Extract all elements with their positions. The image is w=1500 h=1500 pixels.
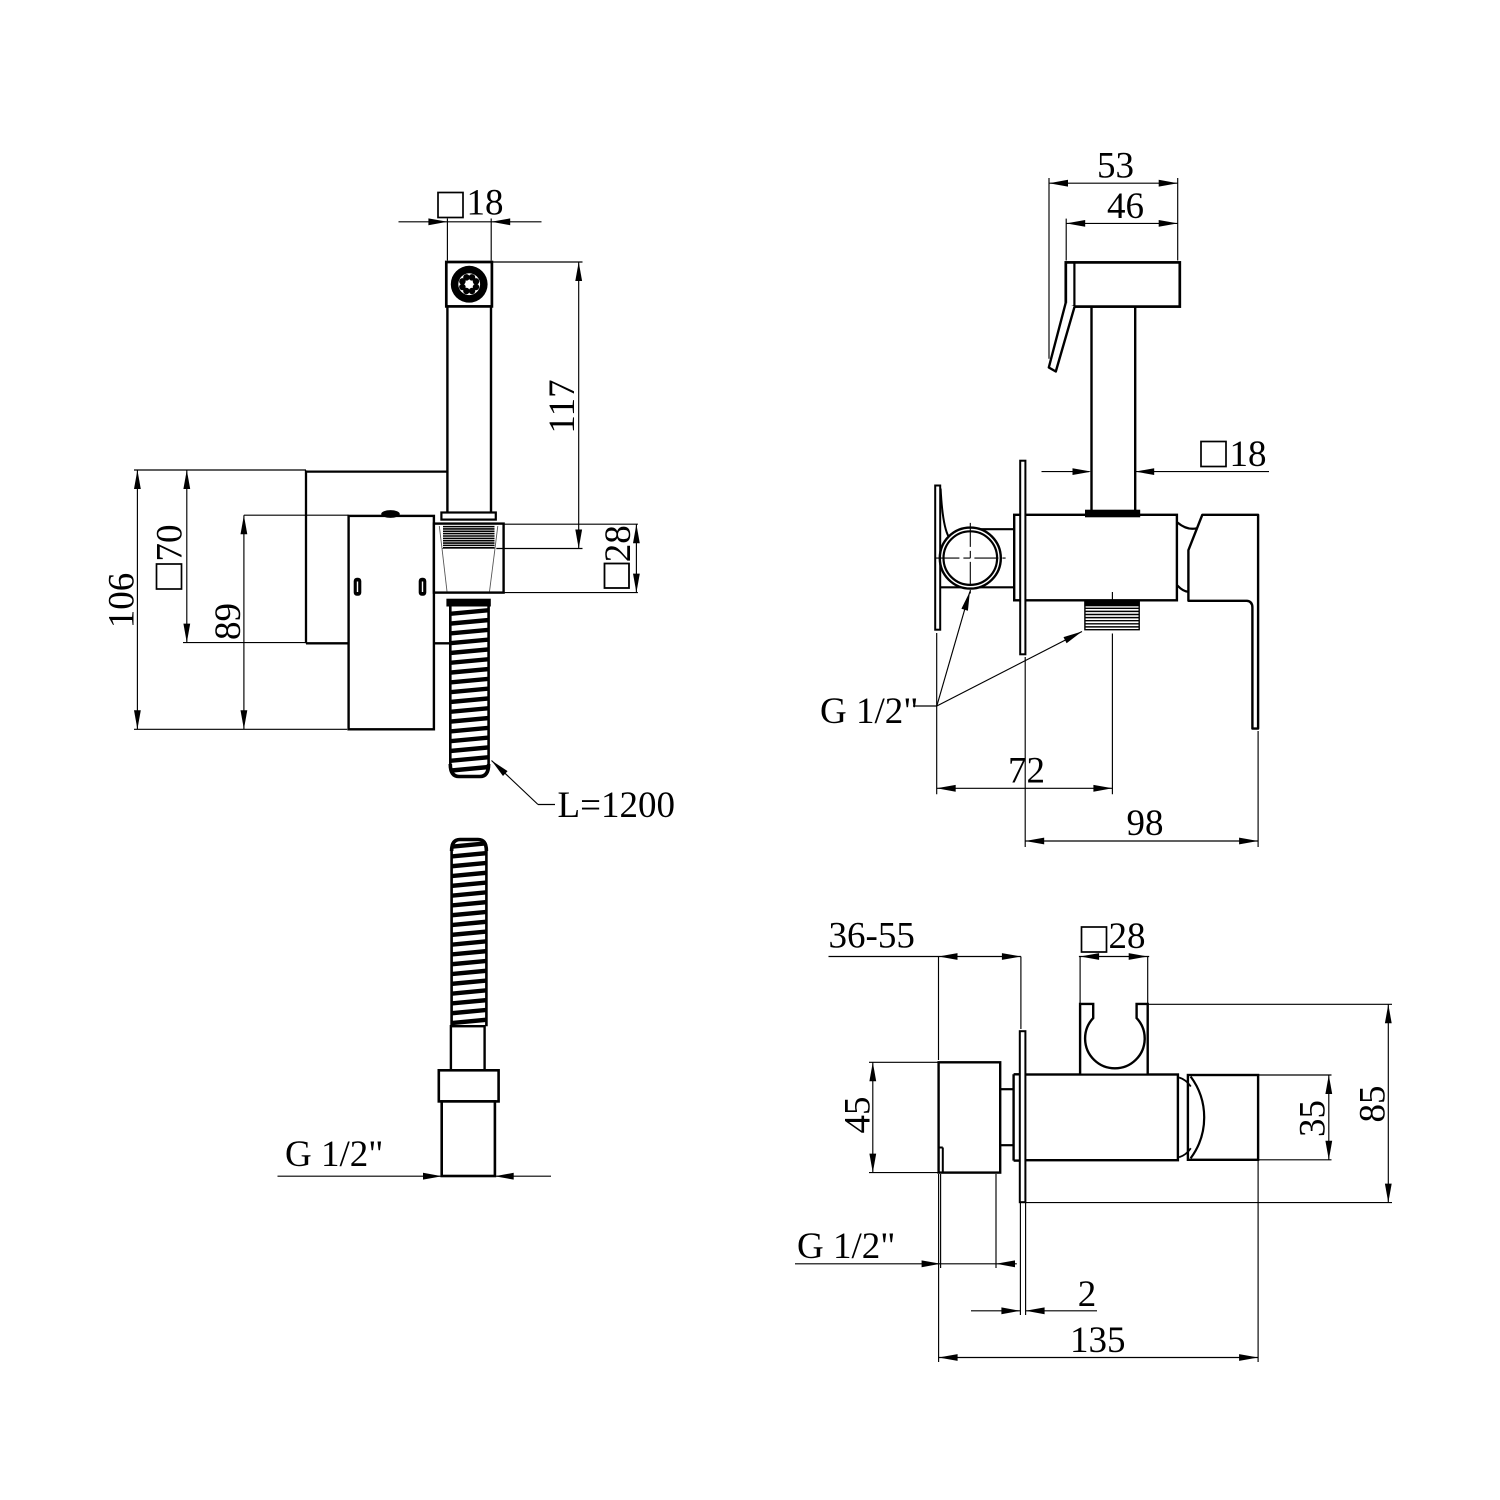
svg-text:28: 28 bbox=[598, 525, 639, 562]
svg-text:18: 18 bbox=[467, 183, 504, 224]
svg-text:28: 28 bbox=[1109, 916, 1146, 957]
svg-text:70: 70 bbox=[149, 525, 190, 562]
svg-text:106: 106 bbox=[101, 573, 142, 629]
svg-text:18: 18 bbox=[1230, 434, 1267, 475]
svg-text:85: 85 bbox=[1353, 1086, 1394, 1123]
svg-text:L=1200: L=1200 bbox=[558, 785, 675, 826]
svg-text:135: 135 bbox=[1070, 1320, 1126, 1361]
svg-text:117: 117 bbox=[542, 379, 583, 433]
svg-text:36-55: 36-55 bbox=[829, 916, 915, 957]
svg-text:46: 46 bbox=[1107, 186, 1144, 227]
svg-text:2: 2 bbox=[1078, 1274, 1097, 1315]
svg-text:53: 53 bbox=[1097, 146, 1134, 187]
svg-text:G 1/2": G 1/2" bbox=[797, 1226, 895, 1267]
svg-text:G 1/2": G 1/2" bbox=[820, 691, 918, 732]
svg-text:35: 35 bbox=[1293, 1100, 1334, 1137]
svg-text:98: 98 bbox=[1127, 803, 1164, 844]
svg-text:45: 45 bbox=[838, 1097, 879, 1134]
svg-text:G 1/2": G 1/2" bbox=[285, 1134, 383, 1175]
svg-text:72: 72 bbox=[1008, 751, 1045, 792]
svg-text:89: 89 bbox=[208, 603, 249, 640]
